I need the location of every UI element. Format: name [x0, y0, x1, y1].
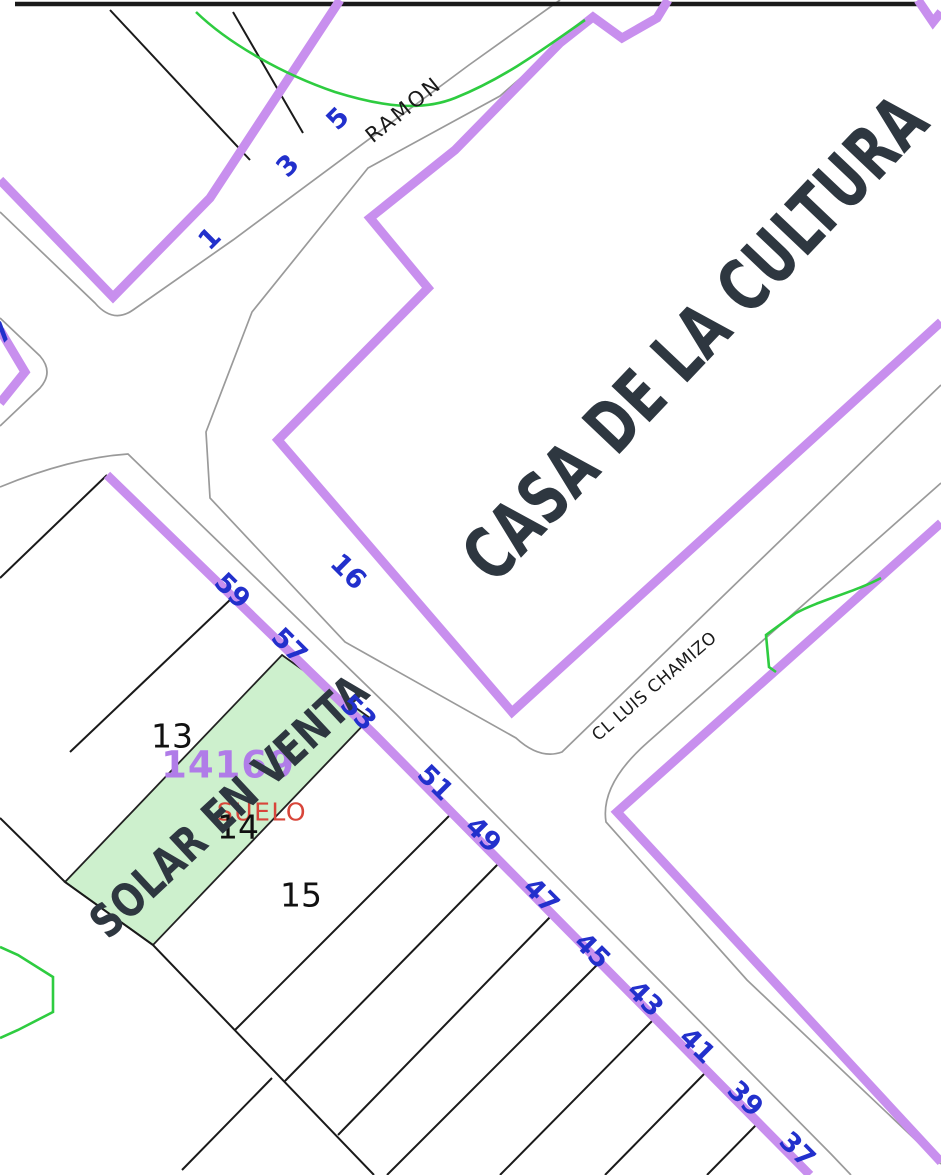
parcel-number-13: 13 [151, 720, 193, 753]
green-curve-top [196, 12, 585, 106]
block-boundary-se [617, 523, 941, 1162]
green-curve-bottom-left [0, 947, 53, 1038]
parcel-divider-g [707, 1123, 758, 1175]
street-edge-casa-block [206, 16, 941, 754]
block-boundary-nw [0, 0, 340, 297]
cadastral-map: CASA DE LA CULTURA14169SUELO14SOLAR EN V… [0, 0, 941, 1175]
street-edge-sw [0, 454, 851, 1175]
parcel-divider-15a [235, 813, 452, 1030]
parcel-divider-d [387, 962, 600, 1175]
parcel-lines [0, 4, 920, 1175]
parcel-divider-h [182, 1078, 272, 1170]
parcel-divider-e [500, 1018, 655, 1175]
block-boundary-casa-cultura [278, 0, 941, 712]
block-boundary-top-right [918, 0, 941, 22]
block-edge-nw [0, 475, 107, 578]
parcel-number-15: 15 [280, 879, 322, 912]
parcel-divider-c [338, 915, 552, 1135]
parcel-divider-f [605, 1071, 707, 1175]
parcel-line-a1 [110, 10, 250, 160]
